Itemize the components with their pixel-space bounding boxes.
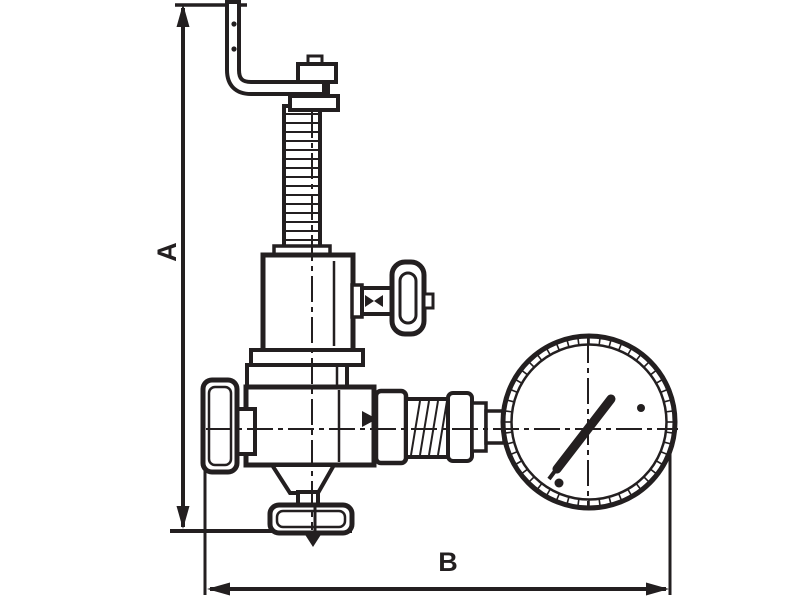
gauge-line-step (472, 403, 486, 451)
shutoff-handwheel-valve (352, 262, 433, 334)
dimension-a-arrow-up-icon (177, 4, 190, 27)
dimension-a-arrow-down-icon (177, 506, 190, 529)
dimension-b-label: B (438, 547, 458, 577)
gauge-dial-dot (637, 404, 645, 412)
stem-collar (290, 96, 338, 110)
dimension-b-arrow-left-icon (207, 583, 230, 596)
adjusting-screw-shaft (284, 106, 320, 258)
valve-dimension-diagram: A B (0, 0, 800, 598)
handwheel-spindle-tip (424, 294, 433, 308)
outlet-flow-arrow-icon (304, 533, 322, 547)
pressure-gauge (503, 336, 675, 508)
lock-nut (298, 64, 336, 82)
outlet-funnel (272, 465, 334, 493)
lever-rivet-icon (231, 46, 236, 51)
handwheel-hub (400, 273, 416, 323)
valve-body-block (246, 387, 374, 465)
gauge-line-union-nut (376, 391, 406, 463)
dimension-a-label: A (152, 242, 182, 262)
threaded-adjusting-screw (284, 106, 320, 258)
bonnet-hex-section (247, 365, 347, 387)
bonnet-flange-plate (251, 350, 363, 365)
spring-housing (263, 246, 353, 352)
bonnet-flange (247, 350, 363, 387)
gauge-connection-fittings (376, 391, 504, 463)
lever-rivet-icon (231, 21, 236, 26)
spring-housing-shell (263, 255, 353, 352)
gauge-needle-pivot-dot (555, 479, 564, 488)
stem-top-nut (290, 56, 338, 110)
dimension-b-arrow-right-icon (646, 583, 669, 596)
gauge-line-second-nut (448, 393, 472, 461)
technical-drawing-canvas: A B (0, 0, 800, 598)
